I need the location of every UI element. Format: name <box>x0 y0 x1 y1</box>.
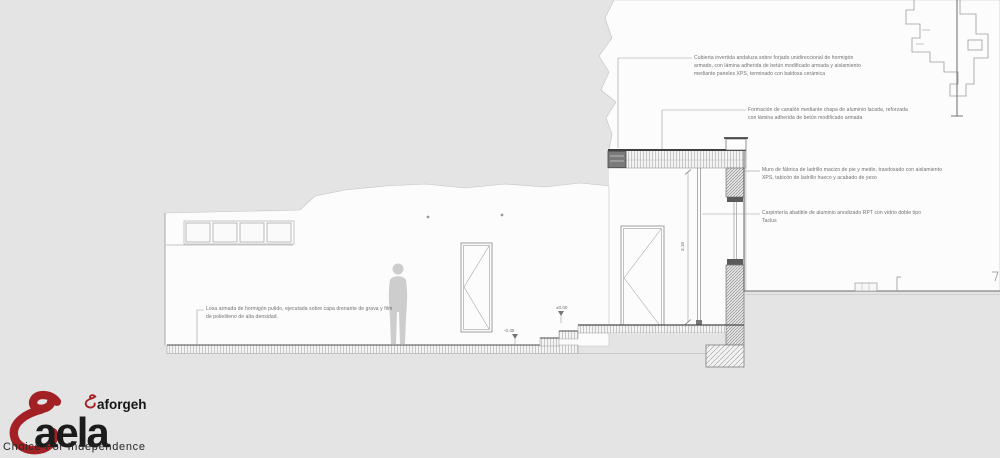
gutter <box>608 152 626 168</box>
window-head-frame <box>727 197 743 202</box>
footing <box>706 345 744 367</box>
brand-block: aela aforgeh Choice For Independence <box>0 0 220 72</box>
architectural-section-sheet: 3.18 <box>0 0 1000 458</box>
annotation-carpinteria: Carpintería abatible de aluminio anodiza… <box>762 210 937 226</box>
level-upper-label: ±0.00 <box>556 305 568 310</box>
dimension-height-label: 3.18 <box>680 242 685 251</box>
annotation-muro: Muro de fábrica de ladrillo macizo de pi… <box>762 167 944 183</box>
brand-tagline: Choice For Independence <box>3 441 146 453</box>
window-sill-frame <box>727 259 743 265</box>
brand-subname: aforgeh <box>97 397 147 412</box>
interior-region <box>165 183 609 346</box>
annotation-cubierta: Cubierta invertida andaluza sobre forjad… <box>694 55 872 78</box>
porch-region <box>609 166 744 334</box>
roof-slab <box>608 150 746 168</box>
level-lower-label: -0.45 <box>504 328 515 333</box>
annotation-canalon: Formación de canalón mediante chapa de a… <box>748 107 916 123</box>
annotation-losa: Losa armada de hormigón pulido, ejecutad… <box>206 306 396 322</box>
